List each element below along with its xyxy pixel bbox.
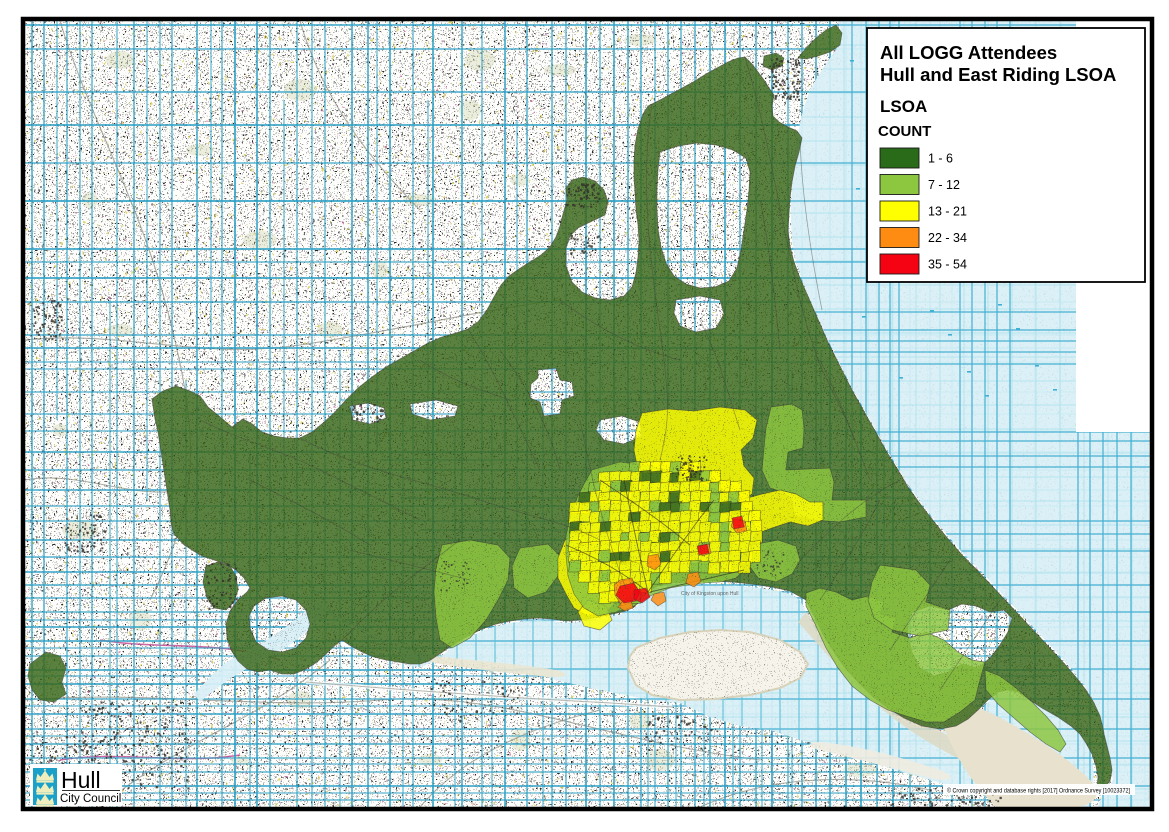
svg-text:© Crown copyright and database: © Crown copyright and database rights [2…	[947, 787, 1130, 795]
svg-text:All LOGG Attendees: All LOGG Attendees	[880, 42, 1057, 63]
svg-text:City Council: City Council	[60, 793, 121, 805]
svg-text:1 - 6: 1 - 6	[928, 152, 953, 166]
svg-text:13 - 21: 13 - 21	[928, 205, 967, 219]
svg-text:City of Kingston upon Hull: City of Kingston upon Hull	[681, 591, 739, 597]
svg-text:22 - 34: 22 - 34	[928, 231, 967, 245]
svg-text:COUNT: COUNT	[878, 123, 931, 140]
svg-text:LSOA: LSOA	[880, 97, 927, 116]
svg-text:35 - 54: 35 - 54	[928, 258, 967, 272]
svg-text:7 - 12: 7 - 12	[928, 178, 960, 192]
svg-text:Hull and East Riding LSOA: Hull and East Riding LSOA	[880, 64, 1116, 85]
svg-text:Hull: Hull	[61, 767, 101, 793]
